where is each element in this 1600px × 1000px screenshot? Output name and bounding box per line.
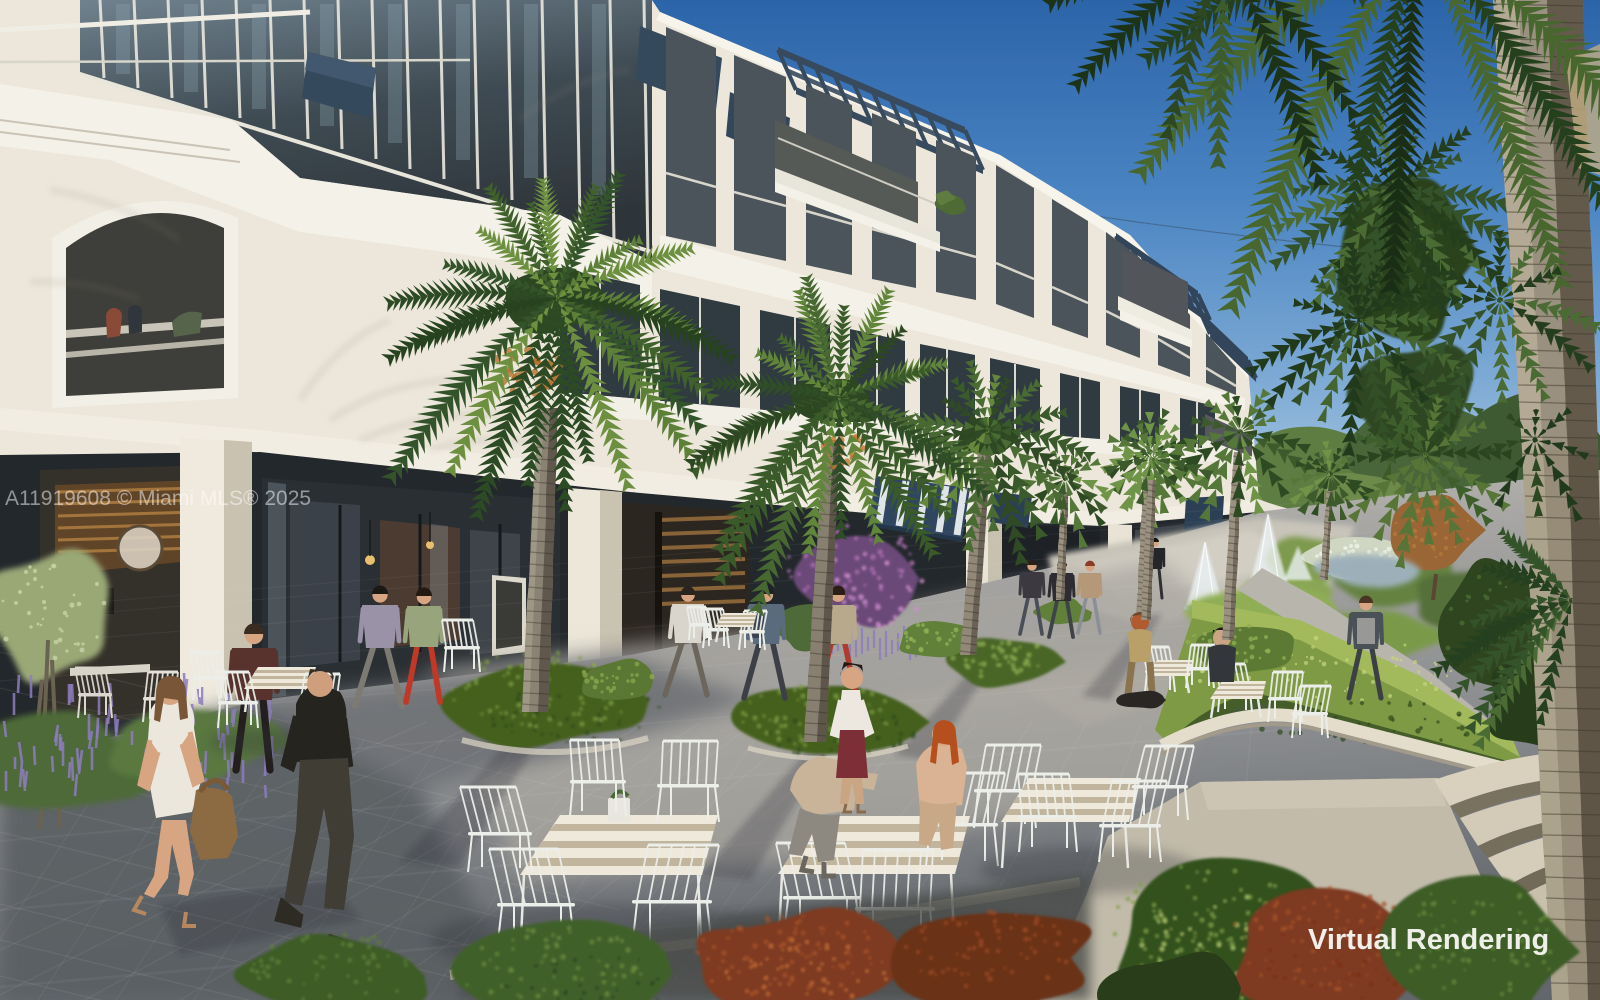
svg-text:A11919608 © Miami MLS® 2025: A11919608 © Miami MLS® 2025 <box>5 487 311 510</box>
svg-text:Virtual Rendering: Virtual Rendering <box>1308 924 1549 956</box>
